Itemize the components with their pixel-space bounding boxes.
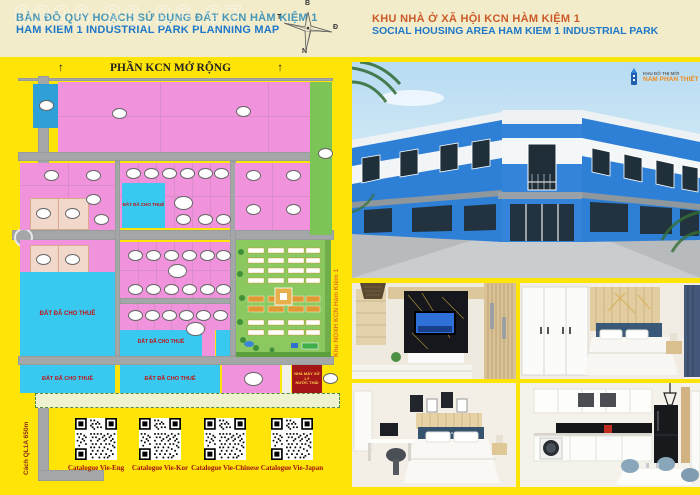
- parcel-badge: [144, 168, 159, 179]
- tower-icon: [628, 68, 640, 86]
- wastewater-label-line2: NƯỚC THẢI: [296, 381, 319, 386]
- parcel-badge: [162, 310, 177, 321]
- parcel-badge: [216, 284, 231, 295]
- parcel-badge: [86, 194, 101, 205]
- parcel-badge: [162, 168, 177, 179]
- parcel-badge: [246, 170, 261, 181]
- parcel-badge: [164, 250, 179, 261]
- expansion-zone-label: PHẦN KCN MỞ RỘNG: [110, 62, 231, 74]
- photo-building-exterior: KHU ĐÔ THỊ MỚI NAM PHAN THIẾT: [352, 62, 700, 278]
- parcel-badge: [200, 284, 215, 295]
- compass-star-icon: [280, 4, 338, 56]
- parcel-cyan-small: [216, 330, 230, 356]
- parcel-badge: [112, 108, 127, 119]
- social-housing-title-en: SOCIAL HOUSING AREA HAM KIEM 1 INDUSTRIA…: [372, 25, 658, 37]
- parcel-divider: [20, 185, 115, 186]
- compass-west-label: T: [277, 14, 281, 21]
- social-housing-area: [236, 240, 331, 357]
- parcel-badge: [318, 148, 333, 159]
- parcel-badge: [146, 250, 161, 261]
- up-arrow-icon: ↑: [58, 62, 64, 74]
- parcel-badge: [36, 208, 51, 219]
- parcel-badge: [214, 168, 229, 179]
- parcel-badge: [246, 204, 261, 215]
- parcel-badge: [128, 250, 143, 261]
- wastewater-plant-parcel: NHÀ MÁY XỬ LÝ NƯỚC THẢI: [292, 365, 322, 393]
- parcel-badge: [198, 214, 213, 225]
- up-arrow-icon: ↑: [277, 62, 283, 74]
- compass: B Đ N T: [280, 4, 338, 56]
- parcel-badge: [236, 106, 251, 117]
- housing-strip-label: Khu NOXH KCN Hàm Kiệm 1: [333, 242, 345, 357]
- parcel-badge: [182, 250, 197, 261]
- qr-code-vie-eng: [75, 418, 117, 460]
- green-strip-right: [310, 82, 332, 235]
- parcel-badge: [44, 170, 59, 181]
- photo-living-room: [352, 283, 516, 379]
- right-title: KHU NHÀ Ở XÃ HỘI KCN HÀM KIỆM 1 SOCIAL H…: [372, 13, 658, 37]
- parcel-pink-small: [202, 330, 215, 356]
- leased-parcel-5: ĐẤT ĐÃ CHO THUÊ: [120, 365, 220, 393]
- parcel-divider: [58, 116, 310, 117]
- parcel-badge: [196, 310, 211, 321]
- parcel-badge: [286, 204, 301, 215]
- parcel-badge: [128, 284, 143, 295]
- parcel-badge: [198, 168, 213, 179]
- buffer-strip: [35, 393, 340, 408]
- parcel-badge: [216, 214, 231, 225]
- map-top-label-row: ↑ PHẦN KCN MỞ RỘNG ↑: [58, 62, 283, 74]
- road-a: [18, 152, 332, 161]
- parcel-badge: [200, 250, 215, 261]
- parcel-badge: [39, 100, 54, 111]
- road-d: [18, 356, 334, 365]
- parcel-badge: [176, 214, 191, 225]
- parcel-badge: [168, 264, 187, 278]
- parcel-badge: [186, 322, 205, 336]
- parcel-badge: [164, 284, 179, 295]
- leased-parcel-2: ĐẤT ĐÃ CHO THUÊ: [20, 272, 115, 356]
- parcel-badge: [146, 284, 161, 295]
- parcel-badge: [128, 310, 143, 321]
- parcel-badge: [179, 310, 194, 321]
- parcel-badge: [126, 168, 141, 179]
- parcel-badge: [65, 208, 80, 219]
- parcel-divider: [235, 196, 310, 197]
- road: [18, 78, 333, 81]
- qr-code-vie-kor: [139, 418, 181, 460]
- social-housing-title-vi: KHU NHÀ Ở XÃ HỘI KCN HÀM KIỆM 1: [372, 13, 658, 25]
- photo-bedroom-wardrobe: [520, 283, 700, 379]
- parcel-badge: [216, 250, 231, 261]
- parcel-badge: [174, 196, 193, 210]
- parcel-badge: [94, 214, 109, 225]
- parcel-badge: [182, 284, 197, 295]
- developer-logo: KHU ĐÔ THỊ MỚI NAM PHAN THIẾT: [628, 68, 699, 86]
- logo-brand: NAM PHAN THIẾT: [643, 76, 699, 83]
- compass-east-label: Đ: [333, 24, 338, 31]
- parcel-badge: [323, 373, 338, 384]
- parcel-badge: [65, 254, 80, 265]
- poster: BẢN ĐỒ QUY HOẠCH SỬ DỤNG ĐẤT KCN HÀM KIỆ…: [0, 0, 700, 495]
- housing-layout-icon: [236, 240, 331, 357]
- parcel-badge: [213, 310, 228, 321]
- parcel-badge: [86, 170, 101, 181]
- parcel-divider: [268, 82, 269, 152]
- photo-kitchen: [520, 383, 700, 487]
- parcel-badge: [36, 254, 51, 265]
- parcel-badge: [145, 310, 160, 321]
- road-b: [12, 230, 334, 240]
- compass-north-label: B: [305, 0, 310, 7]
- compass-south-label: N: [302, 48, 307, 55]
- qr-code-vie-japan: [271, 418, 313, 460]
- highway-distance-label: Cách QL1A 650m: [23, 383, 36, 475]
- parcel-divider: [160, 82, 161, 152]
- qr-label-japan: Catalogue Vie-Japan: [252, 464, 332, 472]
- parcel-white-strip: [282, 365, 291, 393]
- parcel-badge: [244, 372, 263, 386]
- photo-bedroom-desk: [352, 383, 516, 487]
- parcel-badge: [286, 170, 301, 181]
- parcel-pink-topstrip: [58, 82, 310, 152]
- qr-code-vie-chinese: [204, 418, 246, 460]
- parcel-badge: [180, 168, 195, 179]
- leased-parcel-1: ĐẤT ĐÃ CHO THUÊ: [122, 183, 165, 228]
